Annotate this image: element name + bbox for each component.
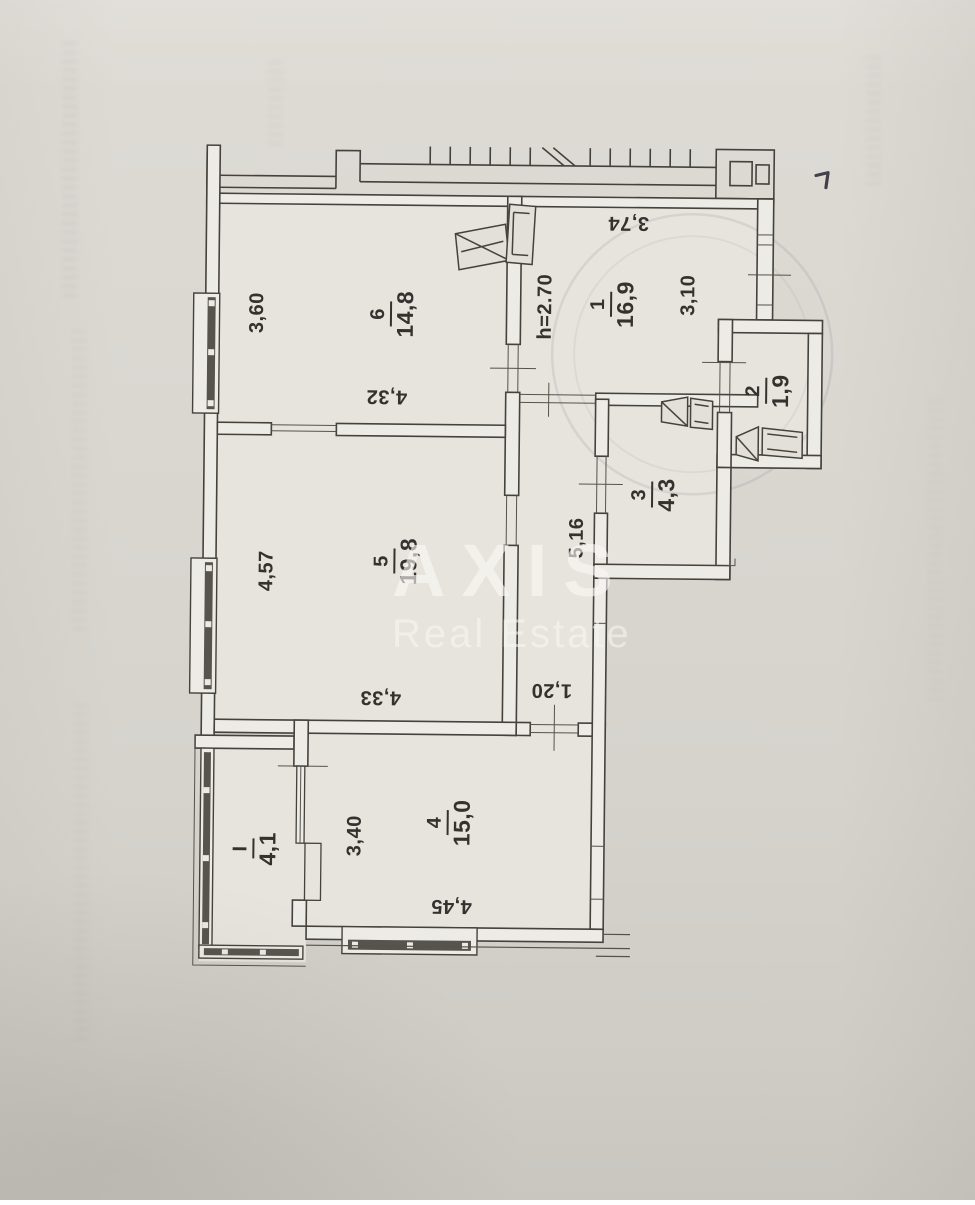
dimension-label: 1,20 xyxy=(531,678,572,701)
floor-plan: 6 14,8 1 16,9 2 1,9 3 4,3 5 19,8 4 15,0 … xyxy=(0,0,975,1205)
scanned-floor-plan-photo: 6 14,8 1 16,9 2 1,9 3 4,3 5 19,8 4 15,0 … xyxy=(0,0,975,1200)
room-area: 15,0 xyxy=(448,799,474,846)
floor-plan-drawing xyxy=(0,0,975,1205)
dimension-label: 4,32 xyxy=(366,384,407,407)
dimension-label: 4,57 xyxy=(255,550,278,591)
dimension-label: 4,45 xyxy=(431,894,472,917)
room-number: 2 xyxy=(743,378,767,404)
room-number: 6 xyxy=(368,301,392,327)
dimension-label: 3,60 xyxy=(246,292,269,333)
dimension-label: 3,40 xyxy=(343,815,366,856)
room-number: 3 xyxy=(629,482,653,508)
room-label-4: 4 15,0 xyxy=(424,799,474,846)
handwritten-mark xyxy=(816,172,828,187)
room-label-I: I 4,1 xyxy=(230,832,279,866)
ceiling-height-label: h=2.70 xyxy=(534,274,558,340)
window-room5 xyxy=(190,558,217,693)
room-label-5: 5 19,8 xyxy=(371,537,421,584)
room-label-6: 6 14,8 xyxy=(368,290,418,337)
room-label-3: 3 4,3 xyxy=(629,478,678,512)
dimension-label: 3,74 xyxy=(608,211,649,234)
room-area: 19,8 xyxy=(395,538,421,585)
dimension-label: 3,10 xyxy=(677,275,700,316)
room-label-1: 1 16,9 xyxy=(588,281,638,328)
parapet-band xyxy=(207,144,774,199)
room-area: 4,3 xyxy=(653,478,678,512)
room-area: 4,1 xyxy=(254,832,279,866)
room-label-2: 2 1,9 xyxy=(743,374,792,408)
dimension-label: 4,33 xyxy=(360,685,401,708)
room-area: 16,9 xyxy=(612,281,638,328)
room-number: 5 xyxy=(371,548,395,574)
room-number: 1 xyxy=(588,291,612,317)
room-number: 4 xyxy=(425,810,449,836)
room-area: 1,9 xyxy=(767,374,792,408)
dimension-label: 5,16 xyxy=(566,517,589,558)
window-room6 xyxy=(193,293,220,413)
room-number: I xyxy=(230,838,254,858)
room-area: 14,8 xyxy=(392,291,418,338)
